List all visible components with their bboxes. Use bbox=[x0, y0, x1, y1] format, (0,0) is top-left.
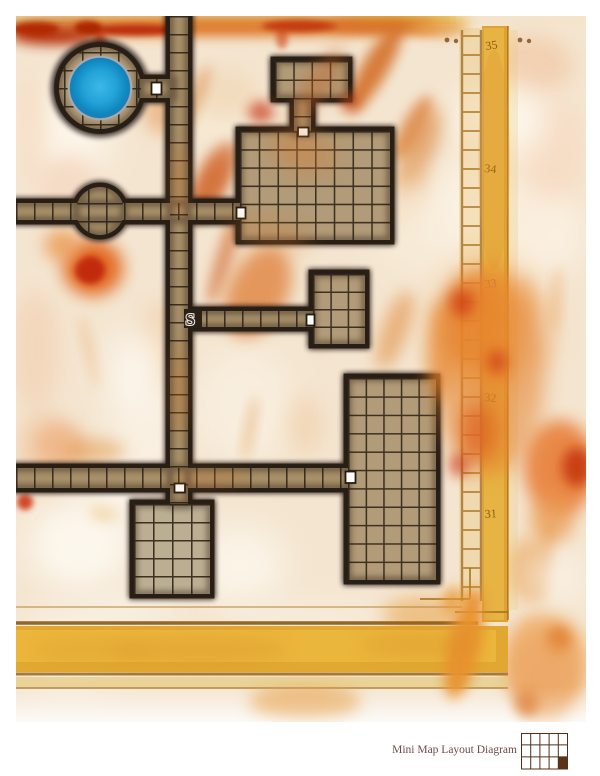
svg-text:35: 35 bbox=[484, 37, 498, 53]
svg-text:S: S bbox=[186, 310, 195, 329]
svg-text:31: 31 bbox=[484, 506, 497, 521]
